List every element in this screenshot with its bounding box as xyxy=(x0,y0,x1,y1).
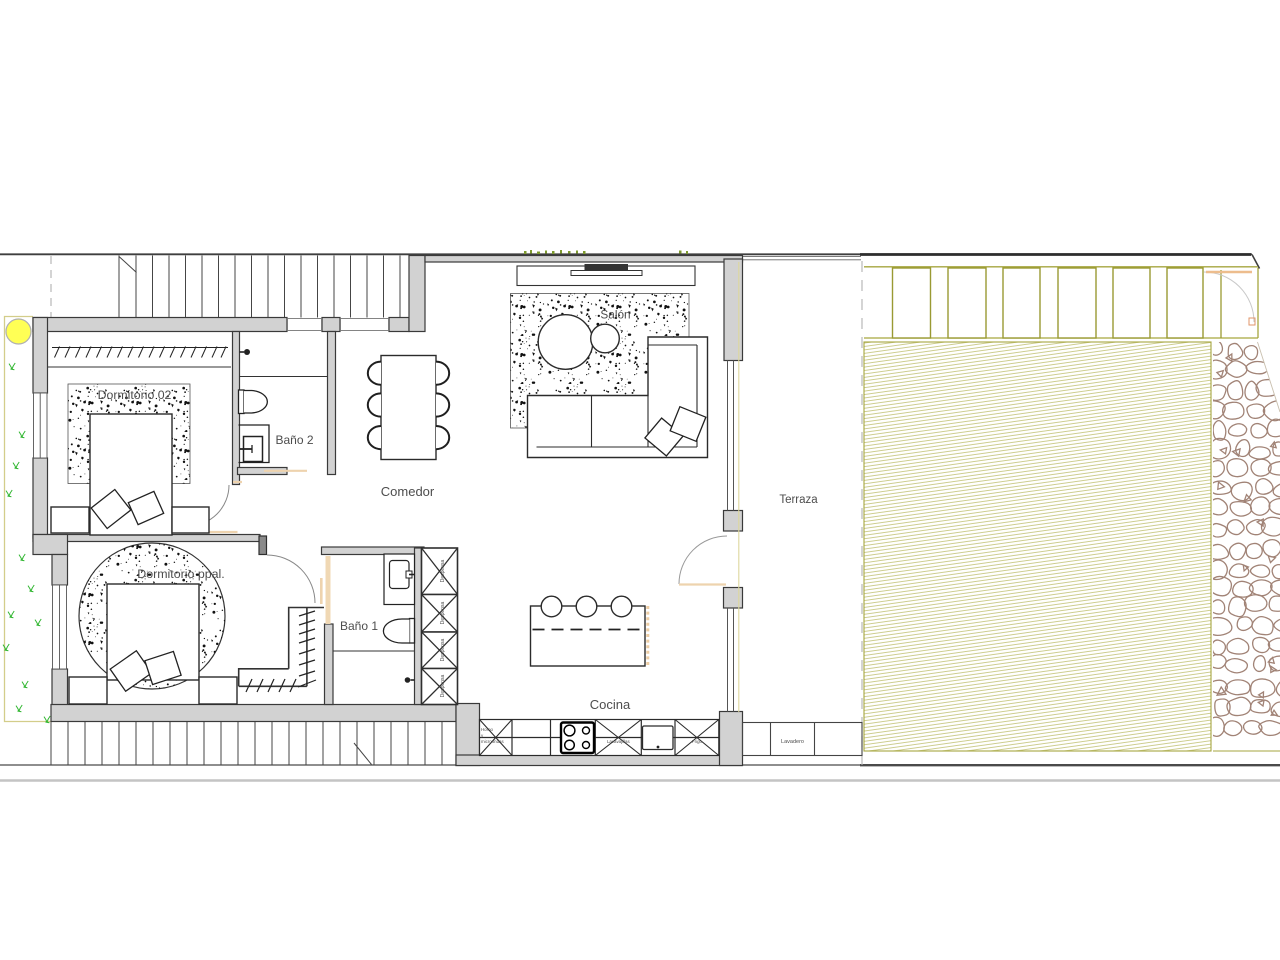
svg-text:Despensa: Despensa xyxy=(440,675,446,698)
svg-text:Terraza: Terraza xyxy=(779,494,818,506)
svg-text:Horno: Horno xyxy=(481,727,494,732)
svg-text:microondas: microondas xyxy=(481,739,504,744)
svg-text:Lavadero: Lavadero xyxy=(781,739,804,745)
svg-text:Cocina: Cocina xyxy=(590,697,631,712)
svg-text:Despensa: Despensa xyxy=(440,560,446,583)
svg-text:Lavavajillas: Lavavajillas xyxy=(607,739,631,744)
svg-text:Despensa: Despensa xyxy=(440,602,446,625)
svg-text:Salón: Salón xyxy=(600,308,630,322)
svg-text:Comedor: Comedor xyxy=(381,484,435,499)
svg-text:Despensa: Despensa xyxy=(440,639,446,662)
svg-text:Dormitorio ppal.: Dormitorio ppal. xyxy=(137,567,224,581)
svg-text:Dormitorio 02: Dormitorio 02 xyxy=(98,388,172,402)
svg-text:Frigo: Frigo xyxy=(692,739,703,744)
svg-text:Baño 1: Baño 1 xyxy=(340,619,378,633)
svg-text:Baño 2: Baño 2 xyxy=(275,433,313,447)
